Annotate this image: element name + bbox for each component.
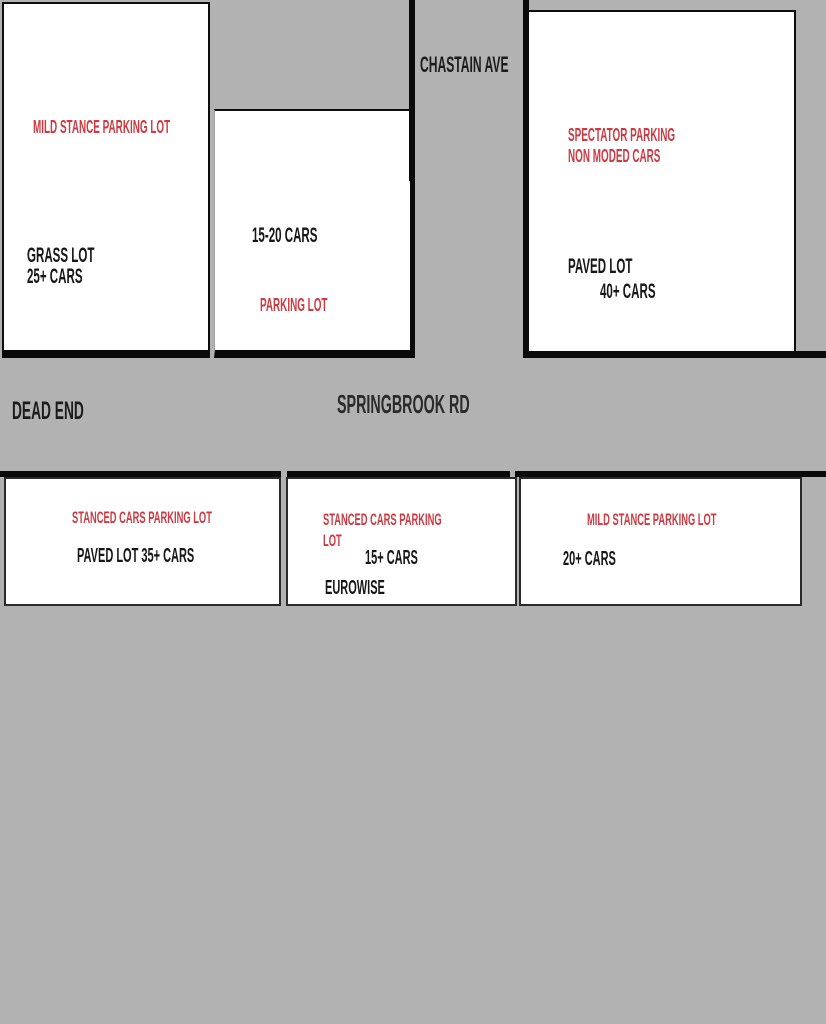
lot-bottom-middle-eurowise — [286, 477, 517, 606]
lot-bottom-right-title: MILD STANCE PARKING LOT — [587, 511, 717, 529]
lot-bottom-middle-brand: EUROWISE — [325, 578, 385, 599]
road-label-springbrook-rd: SPRINGBROOK RD — [337, 391, 470, 418]
lot-top-right-title-line1: SPECTATOR PARKING — [568, 126, 675, 145]
chastain-ave-west-road-line — [409, 0, 415, 181]
lot-top-middle-capacity: 15-20 CARS — [252, 225, 317, 247]
lot-top-left-grass — [2, 2, 210, 358]
lot-bottom-middle-capacity: 15+ CARS — [365, 548, 418, 569]
lot-top-left-surface: GRASS LOT — [27, 245, 94, 267]
road-label-dead-end: DEAD END — [12, 398, 84, 424]
lot-bottom-left-title: STANCED CARS PARKING LOT — [72, 509, 212, 527]
lot-bottom-right-mild-stance — [519, 477, 802, 606]
lot-bottom-left-stanced — [4, 477, 281, 606]
lot-top-left-title: MILD STANCE PARKING LOT — [33, 118, 170, 137]
chastain-ave-east-road-line-stub — [523, 0, 529, 12]
lot-bottom-left-details: PAVED LOT 35+ CARS — [77, 546, 194, 567]
lot-top-right-title-line2: NON MODED CARS — [568, 147, 660, 166]
parking-map-canvas: MILD STANCE PARKING LOT GRASS LOT 25+ CA… — [0, 0, 826, 1024]
springbrook-rd-north-line-right-extension — [794, 351, 826, 358]
lot-top-middle-label: PARKING LOT — [260, 296, 327, 315]
lot-top-right-surface: PAVED LOT — [568, 256, 632, 278]
lot-top-right-spectator — [523, 10, 796, 358]
lot-bottom-middle-title-line2: LOT — [323, 532, 342, 550]
road-label-chastain-ave: CHASTAIN AVE — [420, 53, 509, 76]
lot-top-left-capacity: 25+ CARS — [27, 266, 83, 288]
lot-bottom-middle-title-line1: STANCED CARS PARKING — [323, 511, 442, 529]
lot-bottom-right-capacity: 20+ CARS — [563, 549, 616, 570]
lot-top-right-capacity: 40+ CARS — [600, 281, 656, 303]
